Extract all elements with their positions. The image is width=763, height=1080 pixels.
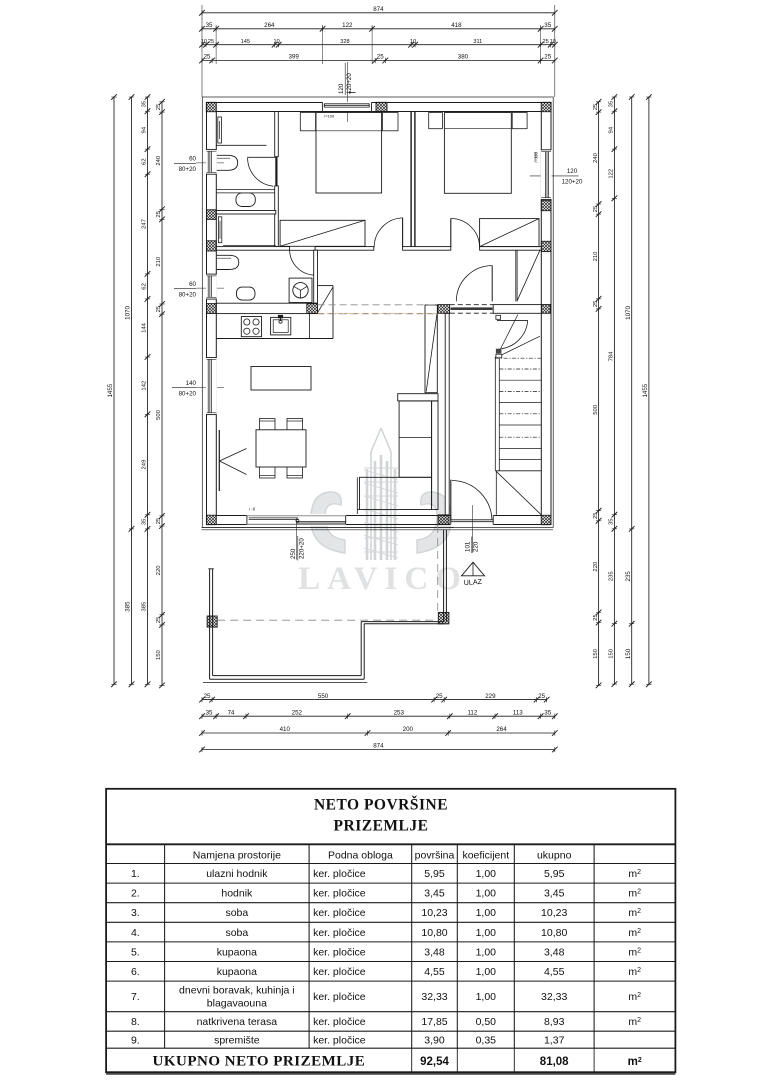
svg-text:25: 25 [436,693,443,700]
svg-text:10,80: 10,80 [421,927,447,939]
svg-text:35: 35 [142,518,148,525]
svg-text:dnevni boravak, kuhinja i: dnevni boravak, kuhinja i [179,984,295,996]
svg-text:1070: 1070 [625,306,632,320]
svg-text:122: 122 [342,22,353,29]
svg-text:150: 150 [609,648,615,659]
svg-text:235: 235 [609,571,615,582]
svg-text:25: 25 [593,300,599,307]
svg-text:418: 418 [451,22,462,29]
svg-text:80+20: 80+20 [179,391,197,398]
svg-text:Namjena prostorije: Namjena prostorije [193,850,281,862]
svg-text:25: 25 [593,512,599,519]
svg-text:80+20: 80+20 [179,166,197,173]
svg-text:10,23: 10,23 [421,907,447,919]
svg-text:35: 35 [609,100,615,107]
svg-text:8,93: 8,93 [544,1016,565,1028]
svg-text:soba: soba [225,927,248,939]
svg-text:25: 25 [377,54,384,61]
svg-text:1,00: 1,00 [476,927,497,939]
svg-text:249: 249 [142,460,148,470]
svg-text:25: 25 [156,616,162,623]
svg-text:NETO POVRŠINE: NETO POVRŠINE [314,797,448,814]
svg-text:220: 220 [473,541,480,552]
svg-text:3,45: 3,45 [424,888,445,900]
svg-text:25: 25 [156,517,162,524]
svg-text:120+20: 120+20 [346,73,353,94]
svg-text:1,00: 1,00 [476,966,497,978]
svg-text:385: 385 [125,601,132,612]
svg-text:ker. pločice: ker. pločice [313,991,366,1003]
svg-text:9.: 9. [131,1034,140,1046]
svg-text:1,00: 1,00 [476,991,497,1003]
svg-text:264: 264 [264,22,275,29]
svg-text:ker. pločice: ker. pločice [313,927,366,939]
svg-text:natkrivena terasa: natkrivena terasa [197,1016,278,1028]
svg-text:25: 25 [543,39,549,45]
svg-text:235: 235 [625,571,632,582]
svg-text:1,00: 1,00 [476,888,497,900]
svg-text:112: 112 [467,709,477,716]
svg-text:220: 220 [156,565,162,576]
svg-text:25: 25 [538,693,545,700]
svg-text:144: 144 [142,322,148,333]
svg-text:142: 142 [142,381,148,391]
svg-text:7.: 7. [131,991,140,1003]
svg-text:2.: 2. [131,888,140,900]
svg-text:25: 25 [593,103,599,110]
svg-text:92,54: 92,54 [420,1056,449,1068]
svg-text:784: 784 [609,351,615,362]
svg-text:145: 145 [241,39,250,45]
svg-text:101: 101 [464,541,471,552]
svg-text:874: 874 [373,743,384,750]
svg-text:264: 264 [496,726,507,733]
svg-text:soba: soba [225,907,248,919]
svg-text:1,00: 1,00 [476,946,497,958]
svg-text:3,48: 3,48 [544,946,565,958]
svg-text:koeficijent: koeficijent [462,850,509,862]
svg-text:35: 35 [206,709,213,716]
svg-text:10: 10 [274,39,280,45]
svg-text:1,00: 1,00 [476,907,497,919]
svg-text:ulazni hodnik: ulazni hodnik [206,868,268,880]
svg-text:ukupno: ukupno [537,850,572,862]
svg-text:35: 35 [609,518,615,525]
svg-text:220+20: 220+20 [298,538,305,559]
svg-text:kupaona: kupaona [217,946,257,958]
svg-text:210: 210 [593,251,599,262]
svg-text:150: 150 [593,648,599,659]
svg-text:328: 328 [340,39,349,45]
svg-text:62: 62 [142,158,148,165]
svg-text:253: 253 [394,709,405,716]
svg-text:500: 500 [156,409,162,420]
svg-text:Podna obloga: Podna obloga [328,850,393,862]
svg-text:1070: 1070 [125,306,132,320]
svg-text:5,95: 5,95 [424,868,445,880]
svg-text:kupaona: kupaona [217,966,257,978]
svg-text:UKUPNO NETO PRIZEMLJE: UKUPNO NETO PRIZEMLJE [153,1054,366,1070]
svg-text:35: 35 [142,100,148,107]
svg-text:ULAZ: ULAZ [463,577,483,587]
svg-text:10,80: 10,80 [541,927,567,939]
svg-text:10: 10 [410,39,416,45]
svg-text:81,08: 81,08 [540,1056,569,1068]
svg-text:površina: površina [415,850,455,862]
svg-text:ker. pločice: ker. pločice [313,946,366,958]
svg-text:0,35: 0,35 [476,1034,497,1046]
svg-text:311: 311 [473,39,482,45]
svg-text:220: 220 [593,561,599,572]
svg-text:r=100: r=100 [324,114,335,119]
svg-text:25: 25 [208,39,214,45]
svg-text:240: 240 [156,155,162,166]
svg-text:25: 25 [204,54,211,61]
svg-text:122: 122 [609,169,615,179]
svg-text:60: 60 [189,156,196,163]
svg-text:32,33: 32,33 [421,991,447,1003]
svg-text:1,00: 1,00 [476,868,497,880]
svg-text:62: 62 [142,283,148,290]
svg-text:25: 25 [156,305,162,312]
svg-text:120: 120 [338,83,345,94]
svg-text:25: 25 [593,614,599,621]
svg-text:247: 247 [142,219,148,229]
svg-text:10,23: 10,23 [541,907,567,919]
svg-text:500: 500 [593,404,599,415]
svg-text:ker. pločice: ker. pločice [313,868,366,880]
svg-text:550: 550 [318,693,329,700]
svg-text:120+20: 120+20 [562,179,583,186]
svg-text:ker. pločice: ker. pločice [313,1034,366,1046]
svg-text:ker. pločice: ker. pločice [313,907,366,919]
svg-text:spremište: spremište [214,1034,260,1046]
svg-text:32,33: 32,33 [541,991,567,1003]
svg-text:200: 200 [403,726,414,733]
svg-text:25: 25 [544,54,551,61]
svg-text:60: 60 [189,281,196,288]
svg-text:5.: 5. [131,946,140,958]
svg-text:3,90: 3,90 [424,1034,445,1046]
svg-text:17,85: 17,85 [421,1016,447,1028]
svg-text:94: 94 [142,126,148,133]
svg-text:r -0: r -0 [249,507,256,512]
svg-text:1.: 1. [131,868,140,880]
svg-text:874: 874 [373,6,384,13]
svg-text:250: 250 [290,548,297,559]
svg-text:385: 385 [142,601,148,612]
svg-text:4,55: 4,55 [424,966,445,978]
svg-text:1455: 1455 [107,383,114,397]
svg-text:210: 210 [156,256,162,267]
svg-text:25: 25 [593,205,599,212]
svg-text:399: 399 [288,54,299,61]
svg-text:6.: 6. [131,966,140,978]
svg-text:35: 35 [544,709,551,716]
svg-text:252: 252 [292,709,303,716]
svg-text:hodnik: hodnik [221,888,253,900]
svg-text:1455: 1455 [642,383,649,397]
svg-text:3,48: 3,48 [424,946,445,958]
svg-text:150: 150 [156,650,162,661]
svg-text:140: 140 [186,380,197,387]
svg-text:LAVICO: LAVICO [298,561,468,597]
svg-text:blagavaouna: blagavaouna [207,997,267,1009]
svg-text:r=100: r=100 [533,151,538,162]
svg-text:113: 113 [513,709,523,716]
svg-text:ker. pločice: ker. pločice [313,888,366,900]
svg-text:0,50: 0,50 [476,1016,497,1028]
svg-text:4,55: 4,55 [544,966,565,978]
svg-text:ker. pločice: ker. pločice [313,966,366,978]
svg-text:150: 150 [625,648,632,659]
svg-text:380: 380 [458,54,469,61]
svg-text:94: 94 [609,126,615,133]
svg-text:5,95: 5,95 [544,868,565,880]
svg-text:35: 35 [206,22,213,29]
svg-text:3.: 3. [131,907,140,919]
svg-text:25: 25 [204,693,211,700]
svg-text:240: 240 [593,152,599,163]
svg-text:410: 410 [280,726,291,733]
svg-text:120: 120 [567,168,578,175]
svg-text:80+20: 80+20 [179,292,197,299]
svg-text:229: 229 [485,693,496,700]
svg-text:35: 35 [544,22,551,29]
svg-text:74: 74 [228,709,235,716]
svg-text:PRIZEMLJE: PRIZEMLJE [334,818,429,835]
svg-text:25: 25 [156,210,162,217]
svg-text:3,45: 3,45 [544,888,565,900]
svg-text:8.: 8. [131,1016,140,1028]
svg-text:1,37: 1,37 [544,1034,565,1046]
svg-text:25: 25 [156,103,162,110]
svg-text:ker. pločice: ker. pločice [313,1016,366,1028]
svg-text:4.: 4. [131,927,140,939]
